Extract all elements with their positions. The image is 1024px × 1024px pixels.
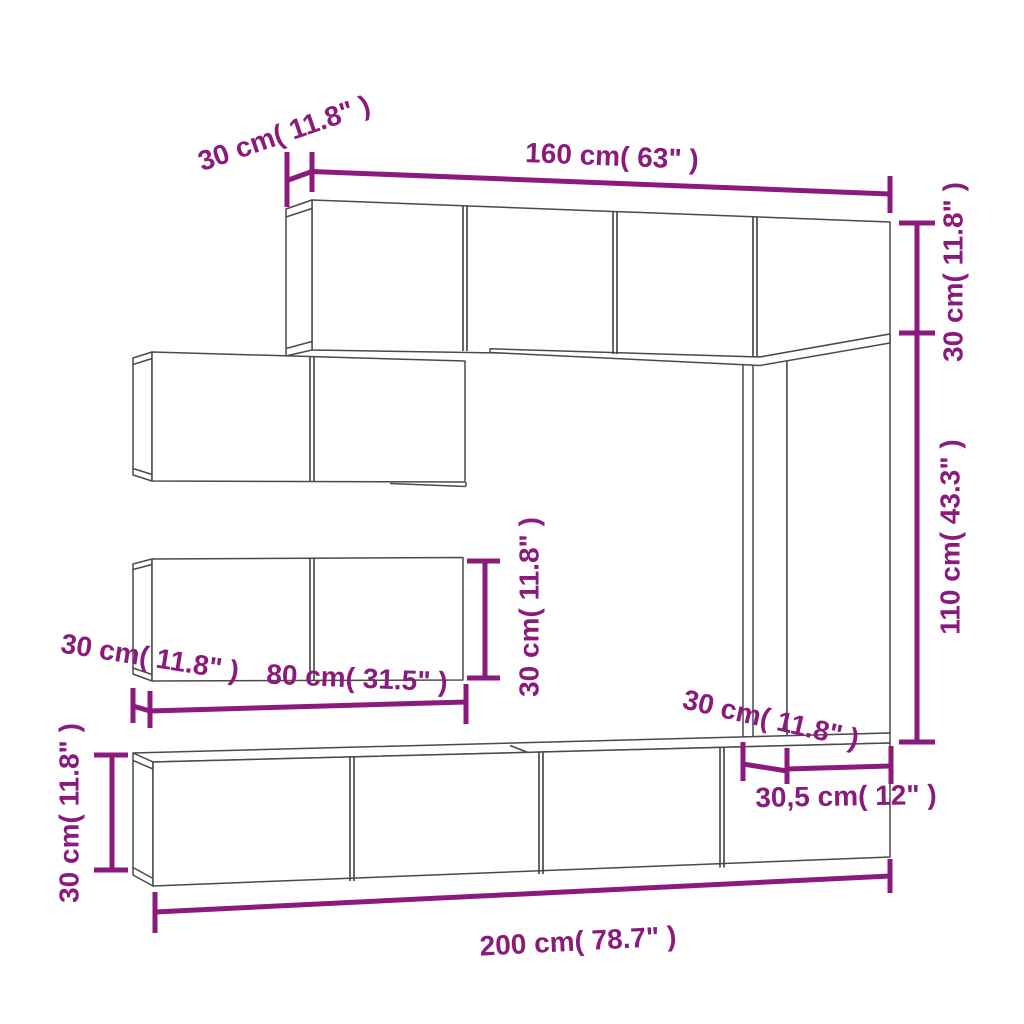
dim-column-height: 110 cm( 43.3" ) bbox=[899, 333, 966, 742]
dim-label-top-width: 160 cm( 63" ) bbox=[525, 137, 700, 175]
dim-label-upper-right-height: 30 cm( 11.8" ) bbox=[938, 182, 969, 362]
dim-top-cabinet-depth: 30 cm( 11.8" ) bbox=[194, 89, 374, 207]
dim-bottom-cabinet-height: 30 cm( 11.8" ) bbox=[54, 723, 129, 903]
dim-label-column-width: 30,5 cm( 12" ) bbox=[755, 779, 937, 813]
middle-shelf-cabinet bbox=[133, 352, 466, 487]
dim-label-top-depth: 30 cm( 11.8" ) bbox=[194, 89, 374, 177]
dim-upper-right-height: 30 cm( 11.8" ) bbox=[899, 182, 969, 362]
dim-shelf-height: 30 cm( 11.8" ) bbox=[467, 517, 545, 697]
right-column-cabinet bbox=[721, 333, 890, 737]
diagram-canvas: 30 cm( 11.8" ) 160 cm( 63" ) 30 cm( 11.8… bbox=[0, 0, 1024, 1024]
dim-label-shelf-width: 80 cm( 31.5" ) bbox=[266, 659, 449, 698]
dim-label-column-height: 110 cm( 43.3" ) bbox=[935, 439, 966, 634]
dim-label-shelf-height: 30 cm( 11.8" ) bbox=[514, 517, 545, 697]
dim-label-bottom-width: 200 cm( 78.7" ) bbox=[479, 920, 677, 961]
furniture-dimension-diagram: 30 cm( 11.8" ) 160 cm( 63" ) 30 cm( 11.8… bbox=[0, 0, 1024, 1024]
dim-top-cabinet-width: 160 cm( 63" ) bbox=[312, 137, 890, 213]
dim-label-bottom-height: 30 cm( 11.8" ) bbox=[54, 723, 85, 903]
top-cabinet bbox=[286, 200, 890, 366]
